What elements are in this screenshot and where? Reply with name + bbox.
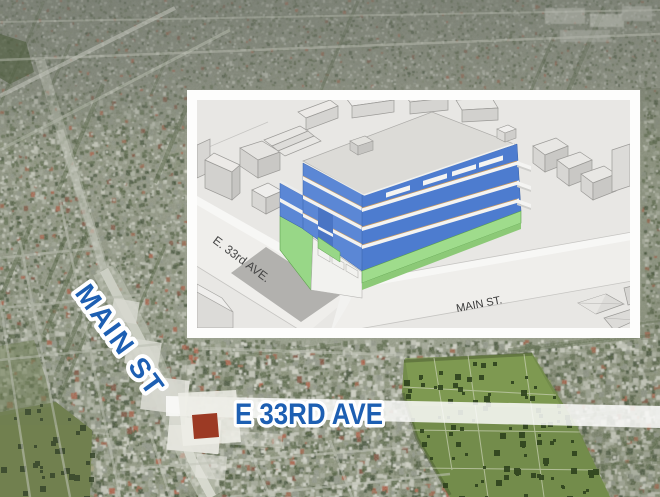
- svg-text:E 33RD AVE: E 33RD AVE: [235, 398, 383, 431]
